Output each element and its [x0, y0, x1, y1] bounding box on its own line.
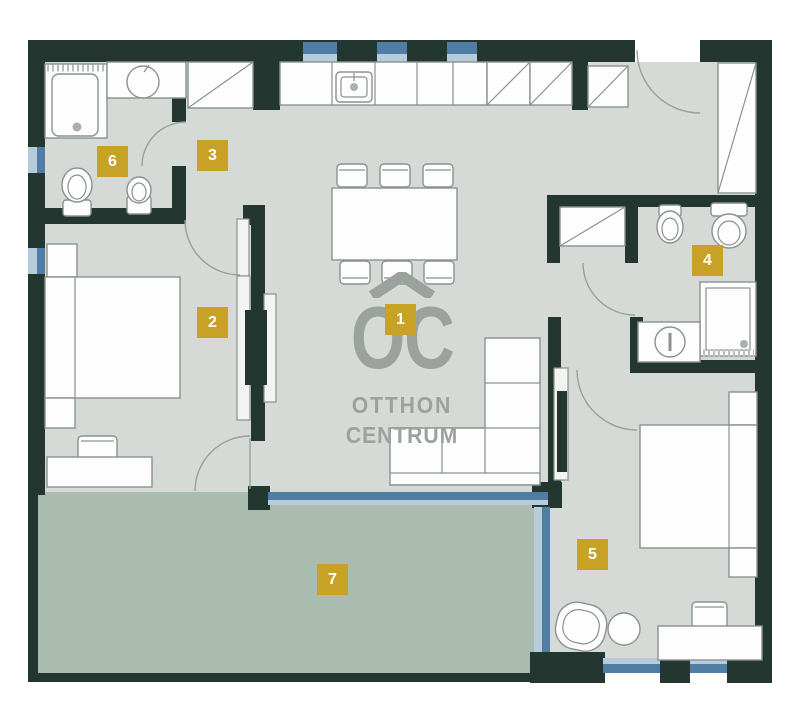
bidet-symbol — [127, 177, 151, 203]
pier-kitchen — [572, 62, 588, 110]
pier-hall — [253, 62, 280, 110]
room-marker-7: 7 — [317, 564, 348, 595]
nightstand — [45, 398, 75, 428]
room-marker-5: 5 — [577, 539, 608, 570]
logo-word-otthon: OTTHON — [334, 392, 470, 419]
window-top-1-inner — [303, 54, 337, 62]
pier-vestibule-left — [547, 195, 560, 263]
logo-word-centrum: CENTRUM — [334, 422, 470, 449]
room-marker-3: 3 — [197, 140, 228, 171]
kitchen-counter — [280, 62, 487, 105]
window-top-3-inner — [447, 54, 477, 62]
desk-symbol — [658, 626, 762, 660]
window-bottom-2 — [690, 664, 727, 673]
window-top-3 — [447, 42, 477, 54]
side-table-symbol — [608, 613, 640, 645]
entrance-opening — [635, 40, 700, 62]
wall-right — [755, 40, 772, 683]
sliding-panel-bedroom5 — [557, 391, 567, 472]
otthon-centrum-watermark: OC OTTHON CENTRUM — [328, 272, 476, 449]
dining-chair — [423, 164, 453, 187]
window-bottom-1-inner — [603, 658, 660, 664]
window-top-1 — [303, 42, 337, 54]
sliding-panel-bedroom2 — [245, 310, 267, 385]
nightstand — [47, 244, 77, 277]
nightstand — [729, 392, 757, 425]
terrace-wall-bottom — [28, 673, 542, 682]
dining-table-symbol — [332, 188, 457, 260]
desk-chair — [692, 602, 727, 628]
pier-terrace-door — [248, 486, 270, 510]
dining-chair — [337, 164, 367, 187]
wall-bottom-pier-1 — [530, 652, 605, 683]
window-left-1-outer — [28, 147, 37, 173]
window-left-1 — [37, 147, 45, 173]
window-left-2 — [37, 248, 45, 274]
door-leaf-bedroom2 — [237, 219, 249, 276]
pier-bath4-left — [625, 195, 638, 263]
room-marker-1: 1 — [385, 304, 416, 335]
terrace-glazing-right — [542, 507, 550, 652]
kitchen-drain — [350, 83, 358, 91]
terrace-wall-left — [28, 495, 38, 681]
terrace-glazing-top — [268, 492, 548, 500]
vestibule-wardrobe — [560, 207, 625, 246]
window-top-2-inner — [377, 54, 407, 62]
window-left-2-outer — [28, 248, 37, 274]
bidet-symbol — [657, 211, 683, 243]
toilet-symbol — [712, 214, 746, 248]
window-bottom-1 — [603, 664, 660, 673]
toilet-symbol — [62, 168, 92, 202]
bed-symbol — [640, 425, 757, 548]
window-top-2 — [377, 42, 407, 54]
terrace-glazing-right-inner — [534, 507, 542, 652]
room-marker-2: 2 — [197, 307, 228, 338]
terrace-glazing-top-inner — [268, 500, 548, 505]
hall-wardrobe — [188, 62, 253, 108]
washbasin-symbol — [127, 66, 159, 98]
wall-bath6-bottom — [40, 208, 186, 224]
wall-bath6-lower — [172, 166, 186, 212]
room-marker-4: 4 — [692, 245, 723, 276]
shower-drain — [73, 123, 82, 132]
terrace-floor — [30, 492, 542, 680]
shower-drain — [740, 340, 748, 348]
nightstand — [729, 548, 757, 577]
dining-chair — [380, 164, 410, 187]
dining-set — [332, 164, 457, 284]
room-marker-6: 6 — [97, 146, 128, 177]
desk-symbol — [47, 457, 152, 487]
floor-plan-page: OC OTTHON CENTRUM 1234567 — [0, 0, 800, 725]
bed-symbol — [45, 277, 180, 398]
